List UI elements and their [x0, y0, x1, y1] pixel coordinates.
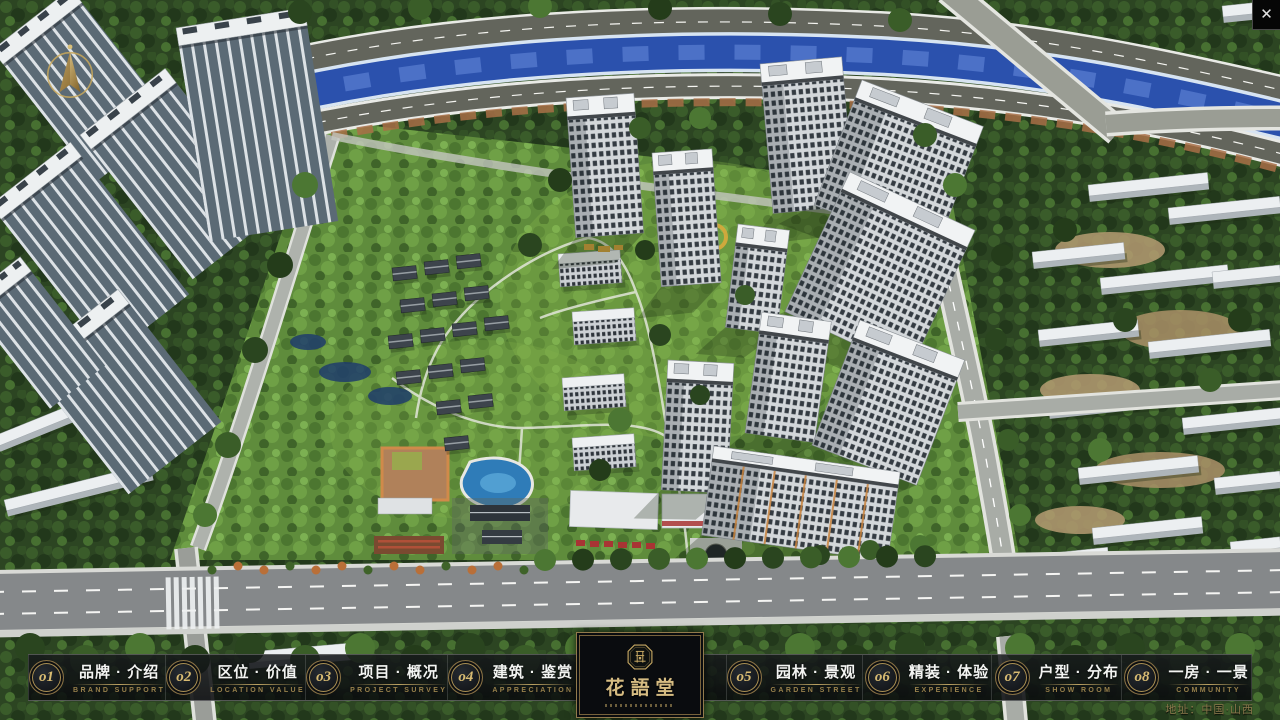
nav-label-en: GARDEN STREET [771, 687, 862, 694]
nav-item-text: 建筑 · 鉴赏APPRECIATION [492, 661, 573, 694]
villa-house [424, 259, 451, 279]
villa-house [400, 297, 427, 317]
nav-divider-line [1168, 684, 1248, 685]
villa-house [428, 363, 455, 383]
nav-label-cn: 园林 · 景观 [776, 661, 856, 682]
nav-label-en: LOCATION VALUE [210, 687, 305, 694]
nav-badge-icon: o6 [865, 660, 900, 695]
nav-item-o7[interactable]: o7户型 · 分布SHOW ROOM [991, 655, 1121, 700]
nav-label-cn: 一房 · 一景 [1168, 661, 1248, 682]
condo-block [572, 307, 639, 349]
nav-badge-icon: o4 [448, 660, 483, 695]
nav-label-cn: 建筑 · 鉴赏 [493, 661, 573, 682]
compass-icon [40, 40, 100, 106]
nav-divider-line [771, 684, 862, 685]
nav-badge-icon: o2 [166, 660, 201, 695]
villa-house [392, 265, 419, 285]
nav-badge-icon: o1 [29, 660, 64, 695]
nav-item-text: 区位 · 价值LOCATION VALUE [210, 661, 305, 694]
nav-label-cn: 项目 · 概况 [359, 661, 439, 682]
nav-item-o2[interactable]: o2区位 · 价值LOCATION VALUE [165, 655, 305, 700]
villa-house [468, 393, 495, 413]
nav-badge-icon: o5 [727, 660, 762, 695]
nav-item-o6[interactable]: o6精装 · 体验EXPERIENCE [862, 655, 992, 700]
nav-item-text: 项目 · 概况PROJECT SURVEY [350, 661, 447, 694]
nav-badge-icon: o7 [995, 660, 1030, 695]
nav-label-cn: 区位 · 价值 [217, 661, 297, 682]
nav-item-o4[interactable]: o4建筑 · 鉴赏APPRECIATION [447, 655, 573, 700]
nav-divider-line [492, 684, 573, 685]
nav-badge-icon: o8 [1124, 660, 1159, 695]
nav-group-left: o1品牌 · 介绍BRAND SUPPORTo2区位 · 价值LOCATION … [28, 655, 574, 700]
compass-north-indicator [40, 40, 100, 106]
nav-divider-line [73, 684, 165, 685]
nav-item-text: 品牌 · 介绍BRAND SUPPORT [73, 661, 165, 694]
villa-house [452, 321, 479, 341]
villa-house [460, 357, 487, 377]
nav-label-en: COMMUNITY [1176, 687, 1241, 694]
amenity-building [374, 448, 448, 554]
nav-item-text: 精装 · 体验EXPERIENCE [909, 661, 989, 694]
nav-label-cn: 户型 · 分布 [1039, 661, 1119, 682]
nav-item-text: 户型 · 分布SHOW ROOM [1039, 661, 1119, 694]
nav-label-en: SHOW ROOM [1045, 687, 1112, 694]
nav-item-o8[interactable]: o8一房 · 一景COMMUNITY [1121, 655, 1252, 700]
nav-badge-icon: o3 [306, 660, 341, 695]
nav-divider-line [909, 684, 989, 685]
nav-item-o3[interactable]: o3项目 · 概况PROJECT SURVEY [305, 655, 447, 700]
nav-label-en: PROJECT SURVEY [350, 687, 447, 694]
villa-house [484, 315, 511, 335]
logo-tagline-line [605, 704, 675, 707]
property-showcase-app: ✕ o1品牌 · 介绍BRAND SUPPORTo2区位 · 价值LOCATIO… [0, 0, 1280, 720]
aerial-masterplan-render [0, 0, 1280, 720]
nav-label-en: APPRECIATION [492, 687, 573, 694]
villa-house [420, 327, 447, 347]
nav-divider-line [1039, 684, 1119, 685]
nav-item-text: 园林 · 景观GARDEN STREET [771, 661, 862, 694]
villa-house [464, 285, 491, 305]
nav-label-en: BRAND SUPPORT [73, 687, 165, 694]
villa-house [432, 291, 459, 311]
courtyard-gatehouse [452, 498, 548, 554]
nav-item-o1[interactable]: o1品牌 · 介绍BRAND SUPPORT [28, 655, 165, 700]
nav-divider-line [210, 684, 305, 685]
villa-house [388, 333, 415, 353]
nav-label-en: EXPERIENCE [914, 687, 983, 694]
nav-item-text: 一房 · 一景COMMUNITY [1168, 661, 1248, 694]
close-button[interactable]: ✕ [1252, 0, 1280, 30]
nav-label-cn: 精装 · 体验 [909, 661, 989, 682]
project-name: 花語堂 [599, 673, 680, 700]
villa-house [436, 399, 463, 419]
villa-house [396, 369, 423, 389]
villa-house [456, 253, 483, 273]
villa-house [444, 435, 471, 455]
nav-item-o5[interactable]: o5园林 · 景观GARDEN STREET [726, 655, 862, 700]
seal-emblem-icon [626, 643, 654, 671]
nav-label-cn: 品牌 · 介绍 [79, 661, 159, 682]
project-logo-panel[interactable]: 花語堂 [576, 632, 704, 718]
address-text: 地址：中国·山西 [1165, 701, 1254, 717]
nav-group-right: o5园林 · 景观GARDEN STREETo6精装 · 体验EXPERIENC… [726, 655, 1252, 700]
nav-divider-line [350, 684, 447, 685]
